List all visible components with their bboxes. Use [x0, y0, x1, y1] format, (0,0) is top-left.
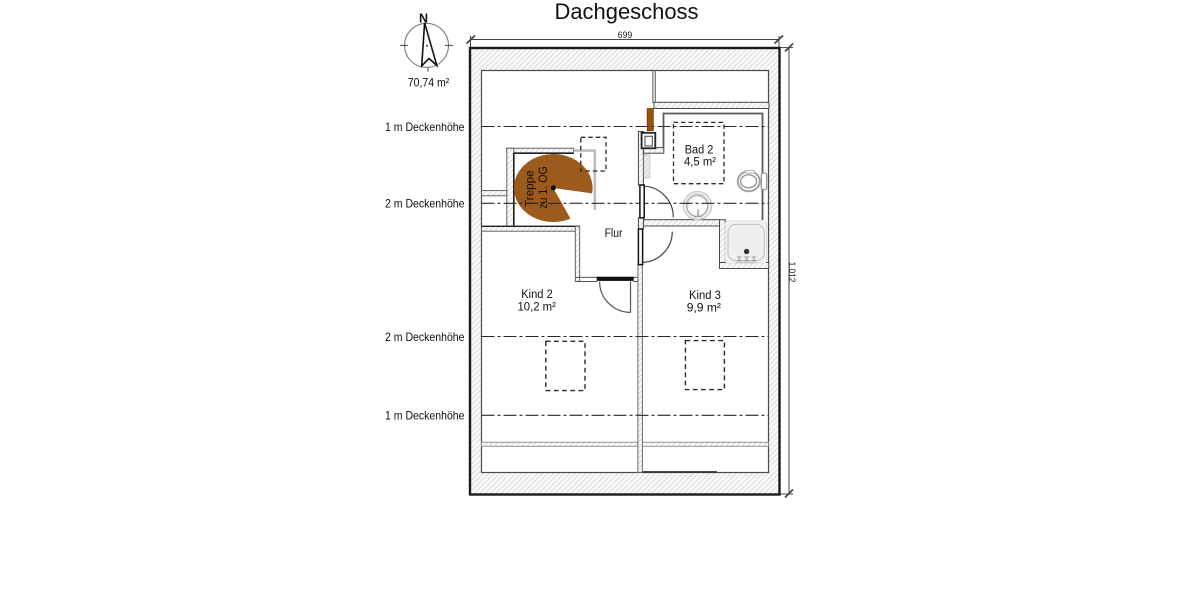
svg-text:2 m Deckenhöhe: 2 m Deckenhöhe — [385, 330, 465, 344]
svg-text:2 m Deckenhöhe: 2 m Deckenhöhe — [385, 197, 465, 211]
svg-text:Flur: Flur — [605, 226, 623, 240]
svg-text:10,2 m²: 10,2 m² — [518, 300, 556, 314]
svg-text:Dachgeschoss: Dachgeschoss — [555, 0, 699, 24]
svg-text:1.012: 1.012 — [786, 262, 797, 283]
svg-text:1 m Deckenhöhe: 1 m Deckenhöhe — [385, 409, 465, 423]
svg-text:699: 699 — [618, 30, 633, 41]
svg-text:Treppe: Treppe — [523, 170, 537, 207]
svg-text:4,5 m²: 4,5 m² — [684, 155, 716, 169]
svg-text:9,9 m²: 9,9 m² — [687, 301, 721, 315]
svg-text:N: N — [419, 12, 428, 26]
svg-text:zu 1. OG: zu 1. OG — [536, 166, 550, 209]
svg-text:1 m Deckenhöhe: 1 m Deckenhöhe — [385, 120, 465, 134]
svg-text:70,74 m²: 70,74 m² — [408, 75, 450, 89]
